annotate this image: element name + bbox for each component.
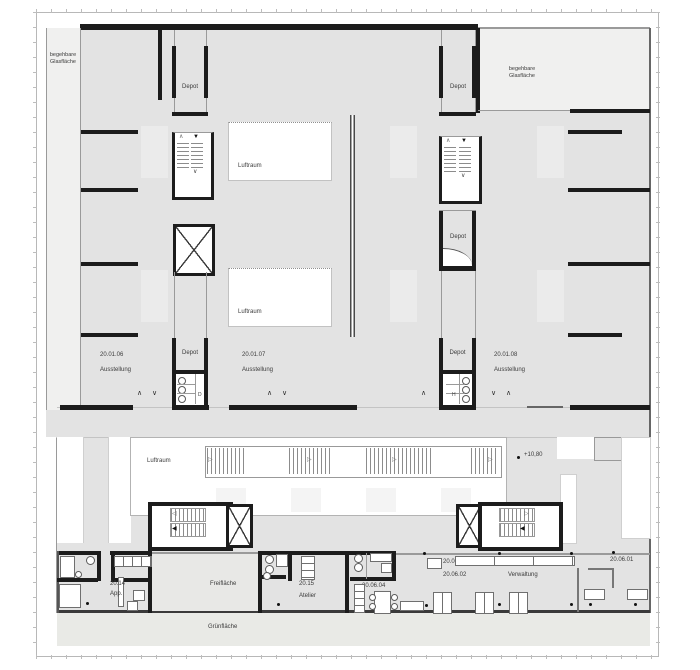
- room-06-name: Ausstellung: [100, 367, 131, 374]
- lower-stair-right: ▷ ◀: [478, 502, 563, 551]
- column-dot: [589, 603, 592, 606]
- column-dot: [570, 603, 573, 606]
- counter-row: [455, 556, 575, 566]
- hall-patch: [366, 488, 396, 512]
- lightwell-right-corner: [557, 437, 594, 459]
- strip-wall-v: [97, 551, 101, 581]
- wc-men-label: H: [452, 393, 456, 398]
- app-number: 20.14: [110, 581, 125, 588]
- table: [374, 591, 391, 614]
- left-shaft-line-a: [174, 272, 175, 338]
- escalator-arrow: ▷: [392, 457, 397, 463]
- escalator-run: [207, 448, 247, 474]
- hall-bottom-wall-seg: [60, 405, 133, 410]
- stair-flight: [444, 147, 456, 175]
- r0602-label: 20.06.02: [443, 572, 466, 579]
- wardrobe: [433, 592, 452, 614]
- stair-flight: [499, 523, 535, 537]
- lower-elevator-left: [226, 504, 253, 548]
- column-dot: [498, 552, 501, 555]
- glass-area-left-wall: [476, 28, 480, 113]
- corridor-floor: [46, 410, 650, 437]
- ruler-ticks-left: [33, 12, 37, 655]
- fixture: [265, 555, 274, 564]
- r0601-label: 20.06.01: [610, 557, 633, 564]
- top-wall: [80, 24, 478, 30]
- gruenflaeche-label: Grünfläche: [208, 624, 237, 631]
- shelf: [354, 584, 365, 613]
- top-edge-glass: [478, 27, 650, 29]
- top-left-partition: [158, 28, 162, 100]
- lightwell-left-b: [108, 437, 131, 543]
- left-stub-4: [81, 333, 138, 337]
- stair-down-icon: ▼: [193, 134, 199, 140]
- ruler-ticks-bottom: [36, 655, 658, 659]
- central-spine-wall: [350, 115, 355, 337]
- level-mark-label: +10,80: [524, 452, 543, 459]
- luftraum-void-1: Luftraum: [228, 122, 332, 181]
- wc-divider: [195, 374, 196, 404]
- level-mark-dot: [517, 456, 520, 459]
- counter: [370, 553, 392, 562]
- gruenflaeche-band: [57, 613, 650, 646]
- hall-bottom-wall-seg: [172, 405, 209, 410]
- bed: [60, 556, 75, 578]
- door-chevron: ∨: [491, 390, 496, 397]
- column-dot: [425, 604, 428, 607]
- door-chevron: ∧: [137, 390, 142, 397]
- column-dot: [277, 603, 280, 606]
- glass-area-bottom-wall: [570, 109, 650, 113]
- left-stub-2: [81, 188, 138, 192]
- column-dot: [634, 603, 637, 606]
- wc-divider: [177, 393, 195, 394]
- door-chevron: ∨: [282, 390, 287, 397]
- right-shaft-line-b: [475, 271, 476, 338]
- lightwell-left-a: [57, 437, 84, 543]
- depot-label-top-right: Depot: [442, 84, 474, 91]
- skylight-patch: [537, 270, 564, 322]
- right-stub-3: [568, 262, 650, 266]
- freiflaeche-area: [152, 553, 258, 611]
- left-core-stair: ∧ ▼ ∨: [172, 132, 214, 200]
- desk: [627, 589, 648, 600]
- stool: [127, 601, 138, 611]
- strip-top-wall: [110, 551, 152, 555]
- wc-fixture: [462, 395, 470, 403]
- room-06-number: 20.01.06: [100, 352, 123, 359]
- right-core-stair: ∧ ▼ ∨: [439, 136, 482, 204]
- skylight-patch: [141, 270, 168, 322]
- left-edge-upper: [46, 28, 47, 410]
- right-core-depot-sill: [439, 112, 476, 116]
- stair-flight: [459, 147, 471, 175]
- wc-divider: [366, 553, 367, 579]
- wc-women-label: D: [198, 393, 202, 398]
- stair-flight: [177, 143, 189, 171]
- partition: [588, 568, 614, 570]
- strip-wall-v: [392, 551, 396, 581]
- stair-chevron: ∨: [193, 169, 197, 175]
- escalator-arrow: ▷: [488, 457, 493, 463]
- cabinet: [301, 556, 315, 580]
- r0604-label: 20.06.04: [362, 583, 385, 590]
- wc-divider: [446, 384, 464, 385]
- glass-strip-divider: [80, 28, 81, 410]
- escalator-band: ▷ ▷ ▷ ▷: [205, 446, 502, 478]
- left-core-depot-sill: [172, 112, 208, 116]
- door-chevron: ∨: [152, 390, 157, 397]
- left-shaft-line-b: [206, 272, 207, 338]
- stair-up-icon: ∧: [179, 134, 183, 140]
- left-stub-1: [81, 130, 138, 134]
- stair-flight: [499, 508, 535, 522]
- wardrobe: [475, 592, 494, 614]
- ruler-ticks-right: [656, 12, 660, 655]
- right-depot-mid-top: [439, 210, 476, 211]
- desk: [400, 601, 424, 611]
- strip-wall-v: [288, 551, 292, 581]
- depot-label-low-right: Depot: [441, 350, 474, 357]
- left-core-depot-wall-r: [204, 46, 208, 98]
- hall-bottom-wall-seg: [439, 405, 476, 410]
- app-name: App.: [110, 591, 122, 598]
- wc-divider: [459, 374, 460, 404]
- luftraum-void-2: Luftraum: [228, 268, 332, 327]
- lightwell-right-b: [621, 437, 651, 539]
- escalator-arrow: ▷: [307, 457, 312, 463]
- skylight-patch: [537, 126, 564, 178]
- column-dot: [86, 602, 89, 605]
- right-wc-wall-l: [439, 374, 443, 406]
- skylight-patch: [141, 126, 168, 178]
- verwaltung-label: Verwaltung: [508, 572, 538, 579]
- shelf: [114, 556, 152, 567]
- luftraum-hall-label: Luftraum: [147, 458, 171, 465]
- left-stub-3: [81, 262, 138, 266]
- fixture: [354, 554, 363, 563]
- glass-strip-left: [46, 28, 80, 410]
- desk: [584, 589, 605, 600]
- left-wc-wall-l: [172, 374, 176, 406]
- strip-wall-v: [345, 551, 349, 613]
- fixture: [263, 572, 271, 580]
- partition: [577, 568, 579, 612]
- depot-label-mid-right: Depot: [442, 234, 474, 241]
- right-depot-mid-sill: [439, 266, 476, 271]
- stair-flight: [191, 143, 203, 171]
- strip-top-line: [152, 552, 262, 554]
- ruler-ticks-top: [36, 9, 658, 13]
- stair-up-icon: ∧: [446, 138, 450, 144]
- column-dot: [570, 552, 573, 555]
- chair: [369, 603, 376, 610]
- column-dot: [612, 551, 615, 554]
- sink: [381, 563, 392, 573]
- room-08-name: Ausstellung: [494, 367, 525, 374]
- freiflaeche-label: Freifläche: [210, 581, 236, 588]
- luftraum-label-2: Luftraum: [238, 309, 262, 316]
- wc-divider: [177, 384, 195, 385]
- hall-patch: [291, 488, 321, 512]
- column-dot: [498, 603, 501, 606]
- room-07-number: 20.01.07: [242, 352, 265, 359]
- room-08-number: 20.01.08: [494, 352, 517, 359]
- wardrobe: [509, 592, 528, 614]
- skylight-patch: [390, 126, 417, 178]
- left-wc-wall-r: [204, 374, 208, 406]
- strip-wall-v: [258, 551, 262, 613]
- escalator-arrow: ▷: [208, 457, 213, 463]
- skylight-patch: [390, 270, 417, 322]
- atelier-name: Atelier: [299, 593, 316, 600]
- strip-wall-h: [350, 577, 392, 581]
- glass-label-top-right: begehbare Glasfläche: [496, 66, 548, 80]
- hall-bottom-wall-seg: [570, 405, 650, 410]
- stair-arrow-filled: ◀: [520, 526, 525, 532]
- partition: [612, 570, 614, 588]
- chair: [391, 594, 398, 601]
- stair-arrow-filled: ◀: [172, 526, 177, 532]
- depot-label-top-left: Depot: [176, 84, 204, 91]
- wc-fixture: [178, 395, 186, 403]
- escalator-run: [366, 448, 431, 474]
- door-chevron: ∧: [421, 390, 426, 397]
- floor-plan: Luftraum Luftraum Depot ∧ ▼ ∨ Depot D De…: [0, 0, 700, 670]
- sink: [276, 554, 288, 567]
- escalator-run: [471, 448, 499, 474]
- hall-bottom-wall-thin: [527, 406, 563, 408]
- room-07-name: Ausstellung: [242, 367, 273, 374]
- right-outline-box: [594, 437, 624, 461]
- hall-bottom-wall-seg: [229, 405, 357, 410]
- fixture: [354, 563, 363, 572]
- door-chevron: ∧: [267, 390, 272, 397]
- stair-arrow-outline: ▷: [524, 511, 529, 517]
- atelier-number: 20.15: [299, 581, 314, 588]
- fixture: [86, 556, 95, 565]
- strip-wall-h: [57, 578, 98, 582]
- strip-top-wall: [57, 551, 98, 555]
- stair-down-icon: ▼: [461, 138, 467, 144]
- right-wc-wall-r: [472, 374, 476, 406]
- chair: [369, 594, 376, 601]
- sideboard: [427, 558, 442, 569]
- depot-label-mid-left: Depot: [174, 350, 206, 357]
- lower-stair-left: ◁ ◀: [148, 502, 233, 551]
- stool: [133, 590, 145, 601]
- fixture: [75, 571, 82, 578]
- chair: [391, 603, 398, 610]
- right-stub-2: [568, 188, 650, 192]
- right-stub-1: [568, 130, 622, 134]
- stair-chevron: ∨: [461, 173, 465, 179]
- left-elevator-door: [181, 267, 201, 270]
- table: [59, 584, 81, 608]
- glass-label-left: begehbare Glasfläche: [45, 52, 81, 66]
- door-chevron: ∧: [506, 390, 511, 397]
- luftraum-label-1: Luftraum: [238, 163, 262, 170]
- column-dot: [423, 552, 426, 555]
- right-shaft-line-a: [441, 271, 442, 338]
- right-stub-4: [568, 333, 622, 337]
- stair-arrow-outline: ◁: [172, 511, 177, 517]
